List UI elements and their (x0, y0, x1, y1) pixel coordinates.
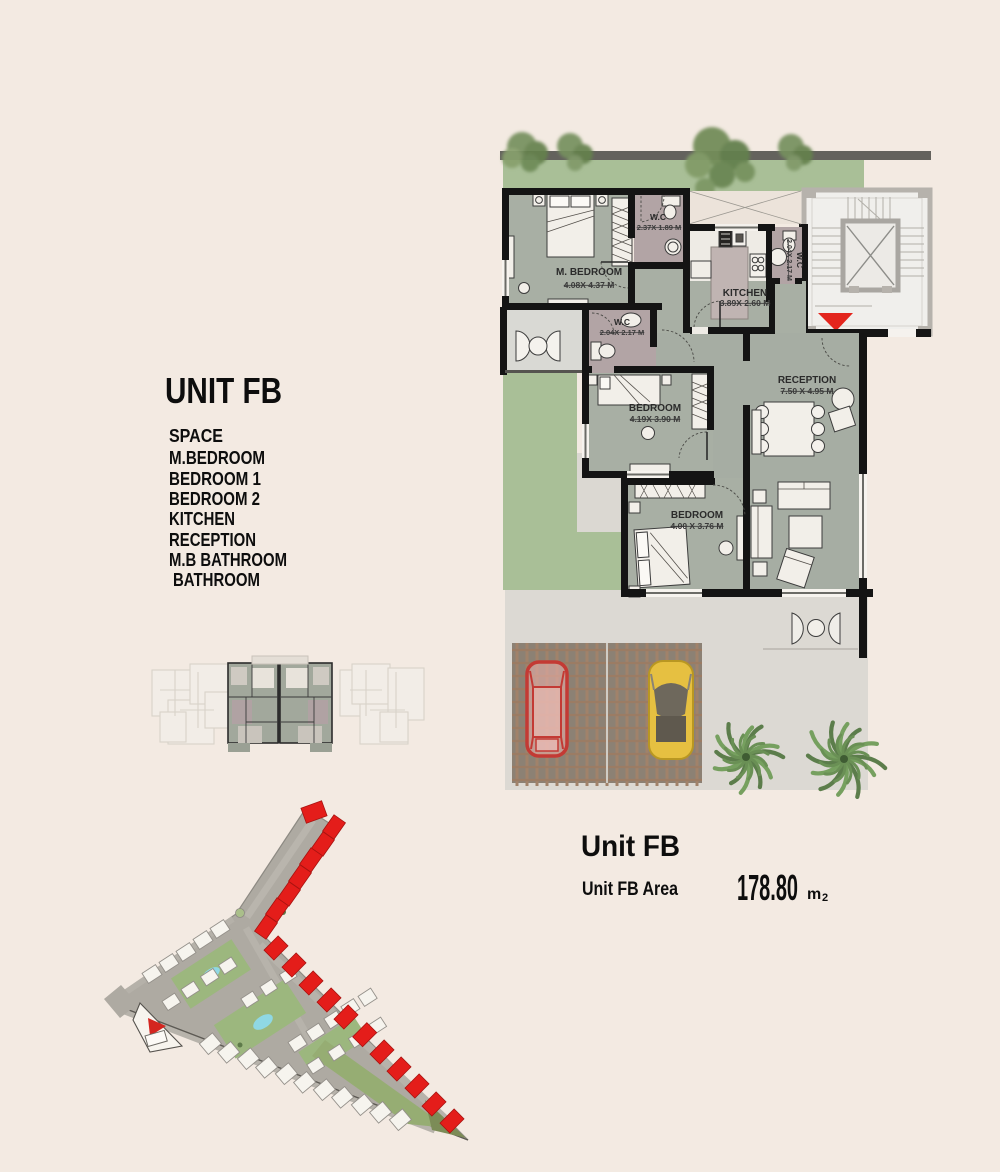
svg-text:SPACE: SPACE (169, 426, 223, 446)
svg-text:Unit FB Area: Unit FB Area (582, 879, 678, 900)
svg-text:M.BEDROOM: M.BEDROOM (169, 448, 265, 468)
svg-text:Unit FB: Unit FB (581, 830, 680, 863)
svg-text:BEDROOM 2: BEDROOM 2 (169, 489, 260, 509)
svg-text:BATHROOM: BATHROOM (173, 570, 260, 590)
svg-text:BEDROOM 1: BEDROOM 1 (169, 469, 261, 489)
svg-text:m: m (807, 886, 821, 903)
svg-text:BEDROOM: BEDROOM (629, 403, 681, 414)
svg-text:3.89X 2.60 M: 3.89X 2.60 M (720, 298, 771, 308)
svg-text:M.B BATHROOM: M.B BATHROOM (169, 550, 287, 570)
svg-text:RECEPTION: RECEPTION (778, 375, 836, 386)
svg-text:4.00 X 3.76 M: 4.00 X 3.76 M (671, 521, 724, 531)
svg-text:2.04X 2.17 M: 2.04X 2.17 M (785, 239, 792, 281)
svg-text:W.C: W.C (795, 252, 805, 268)
svg-text:2.04X 2.17 M: 2.04X 2.17 M (600, 328, 645, 337)
svg-text:RECEPTION: RECEPTION (169, 530, 256, 550)
svg-text:BEDROOM: BEDROOM (671, 510, 723, 521)
svg-text:2.37X 1.89 M: 2.37X 1.89 M (637, 223, 682, 232)
svg-text:W.C: W.C (650, 212, 666, 222)
svg-text:M. BEDROOM: M. BEDROOM (556, 267, 622, 278)
svg-text:4.08X 4.37 M: 4.08X 4.37 M (564, 280, 615, 290)
svg-text:KITCHEN: KITCHEN (169, 509, 235, 529)
svg-text:178.80: 178.80 (737, 867, 798, 908)
svg-text:4.19X 3.90 M: 4.19X 3.90 M (630, 414, 681, 424)
svg-text:W.C: W.C (614, 317, 630, 327)
svg-text:7.50 X 4.95 M: 7.50 X 4.95 M (781, 386, 834, 396)
svg-text:2: 2 (822, 892, 828, 904)
svg-text:UNIT FB: UNIT FB (165, 370, 282, 411)
